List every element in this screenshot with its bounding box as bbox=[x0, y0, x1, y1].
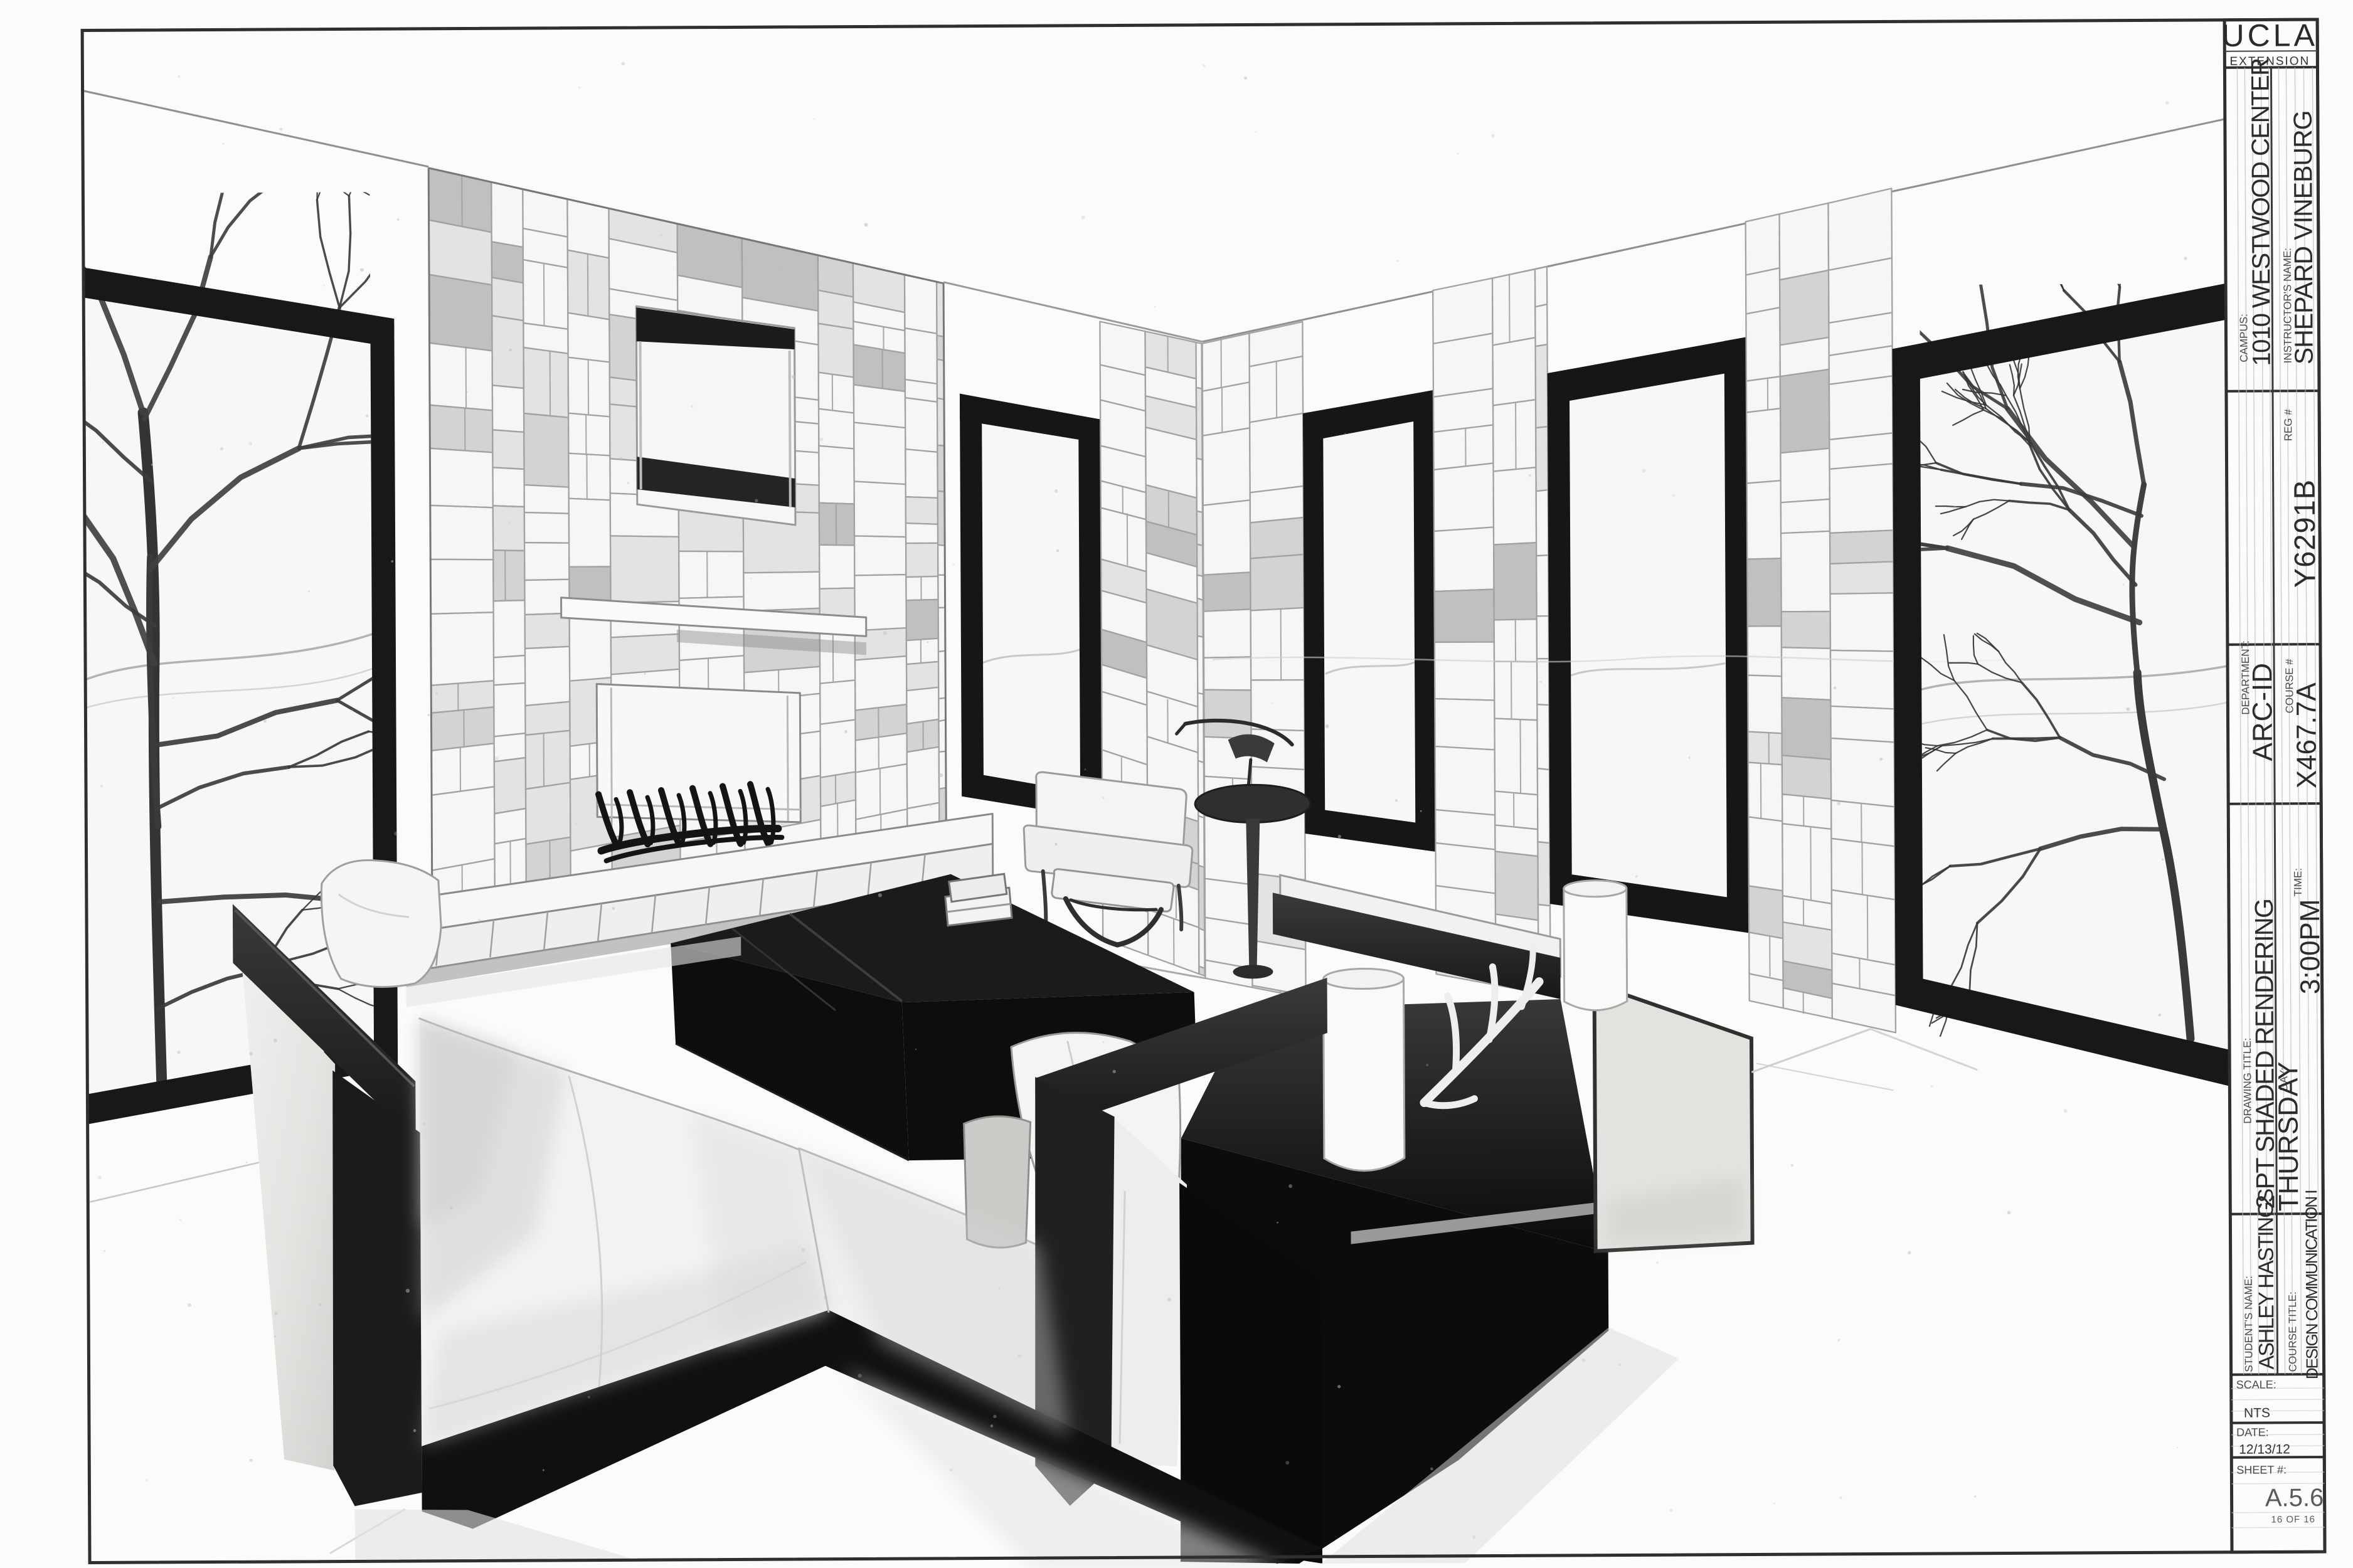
svg-text:ARC-ID: ARC-ID bbox=[2247, 662, 2278, 761]
svg-text:DESIGN COMMUNICATION I: DESIGN COMMUNICATION I bbox=[2302, 1190, 2321, 1379]
svg-text:STUDENT'S NAME:: STUDENT'S NAME: bbox=[2243, 1276, 2255, 1372]
svg-text:A.5.6: A.5.6 bbox=[2265, 1484, 2324, 1512]
svg-text:Y6291B: Y6291B bbox=[2288, 479, 2322, 588]
svg-text:16 OF 16: 16 OF 16 bbox=[2271, 1514, 2315, 1525]
svg-text:SHEET #:: SHEET #: bbox=[2236, 1463, 2287, 1476]
svg-text:SHEPARD VINEBURG: SHEPARD VINEBURG bbox=[2288, 110, 2318, 364]
svg-text:12/13/12: 12/13/12 bbox=[2239, 1442, 2290, 1456]
svg-text:TIME:: TIME: bbox=[2292, 868, 2304, 896]
svg-text:X467.7A: X467.7A bbox=[2291, 682, 2322, 789]
svg-text:REG #: REG # bbox=[2282, 409, 2294, 442]
svg-text:3:00PM: 3:00PM bbox=[2295, 899, 2326, 994]
svg-text:1010 WESTWOOD CENTER: 1010 WESTWOOD CENTER bbox=[2246, 58, 2275, 366]
svg-text:COURSE TITLE:: COURSE TITLE: bbox=[2287, 1291, 2299, 1372]
svg-text:DATE:: DATE: bbox=[2236, 1426, 2269, 1439]
svg-text:SCALE:: SCALE: bbox=[2236, 1378, 2276, 1391]
svg-text:ASHLEY HASTINGS: ASHLEY HASTINGS bbox=[2254, 1189, 2278, 1369]
svg-text:UCLA: UCLA bbox=[2221, 18, 2318, 53]
svg-text:NTS: NTS bbox=[2244, 1406, 2270, 1420]
svg-text:THURSDAY: THURSDAY bbox=[2273, 1061, 2304, 1211]
